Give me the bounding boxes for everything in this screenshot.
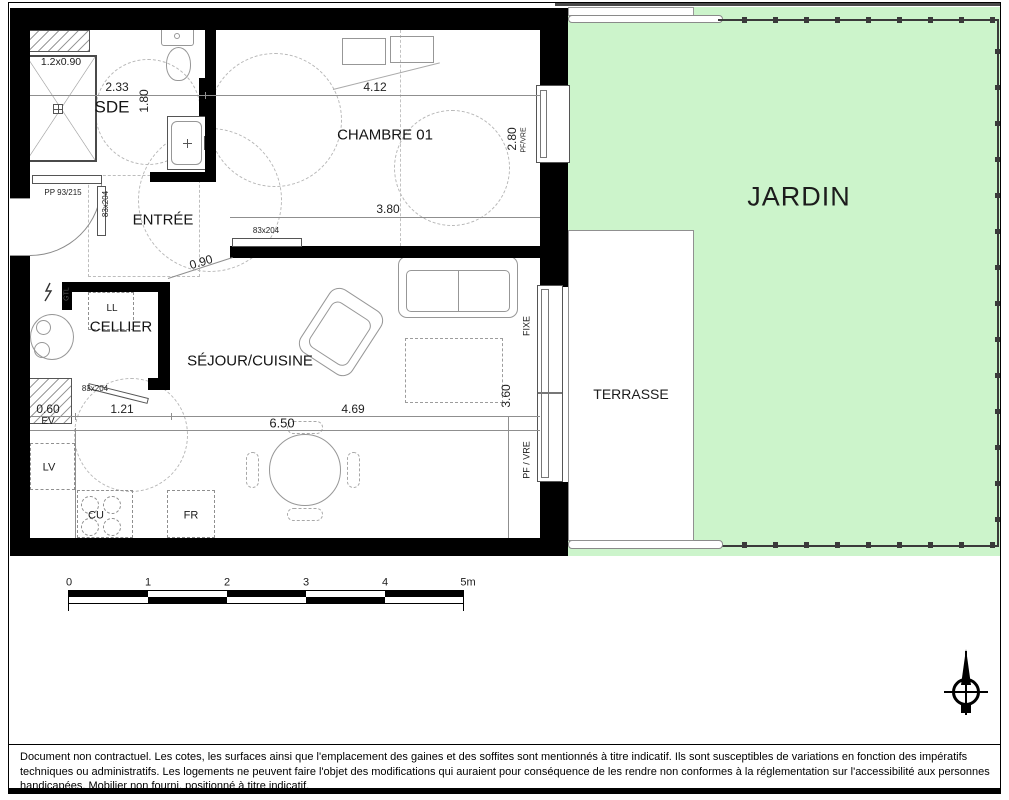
page-border bbox=[8, 2, 1001, 794]
floor-plan-page: JARDIN TERRASSE bbox=[0, 0, 1009, 800]
